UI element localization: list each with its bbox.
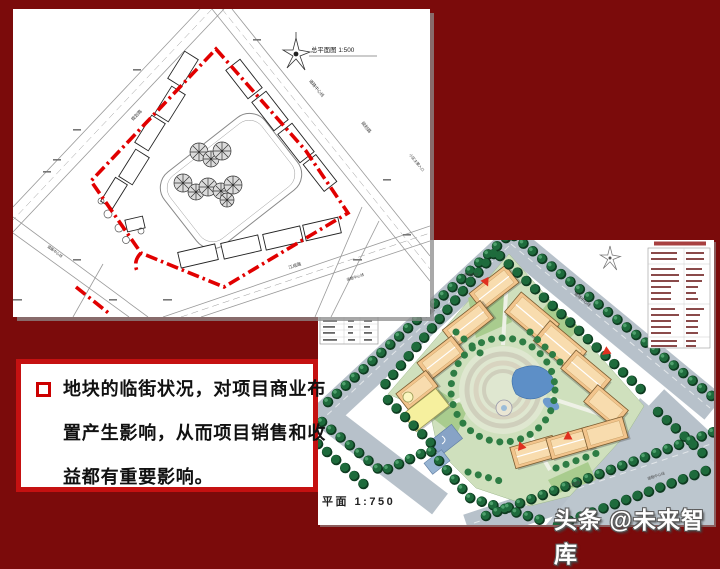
key-point-line-3: 益都有重要影响。 <box>63 455 307 499</box>
cad-north-arrow-icon <box>283 32 310 70</box>
svg-text:道路中心线: 道路中心线 <box>46 244 64 259</box>
square-bullet-icon <box>36 382 51 397</box>
svg-text:江成路: 江成路 <box>288 260 303 271</box>
watermark: 头条 @未来智库 <box>554 501 720 569</box>
svg-text:道路中心线: 道路中心线 <box>346 272 365 282</box>
cad-site-plan-panel: 总平面图 1:500 规划路 规划路 道路中心线 江成路 道路中心线 小区主要入… <box>13 9 430 317</box>
color-plan-caption: 平面 1:750 <box>322 495 395 508</box>
svg-text:道路中心线: 道路中心线 <box>307 78 326 99</box>
svg-text:规划路: 规划路 <box>129 108 144 123</box>
key-point-line-2: 置产生影响，从而项目销售和收 <box>63 411 307 455</box>
key-point-line-1: 地块的临街状况，对项目商业布 <box>63 367 307 411</box>
cad-site-plan-drawing: 总平面图 1:500 规划路 规划路 道路中心线 江成路 道路中心线 小区主要入… <box>13 9 430 317</box>
svg-text:小区主要入口: 小区主要入口 <box>408 152 426 172</box>
cad-title: 总平面图 1:500 <box>311 45 355 54</box>
indicator-table <box>648 242 710 349</box>
color-north-arrow-icon <box>600 246 620 270</box>
slide: { "slide": { "background_color": "#7b0b0… <box>0 0 720 540</box>
cad-tree-cluster <box>174 142 242 207</box>
svg-text:规划路: 规划路 <box>359 120 373 135</box>
svg-text:车库出口: 车库出口 <box>464 272 479 277</box>
key-point-box: 地块的临街状况，对项目商业布 置产生影响，从而项目销售和收 益都有重要影响。 <box>16 359 318 492</box>
